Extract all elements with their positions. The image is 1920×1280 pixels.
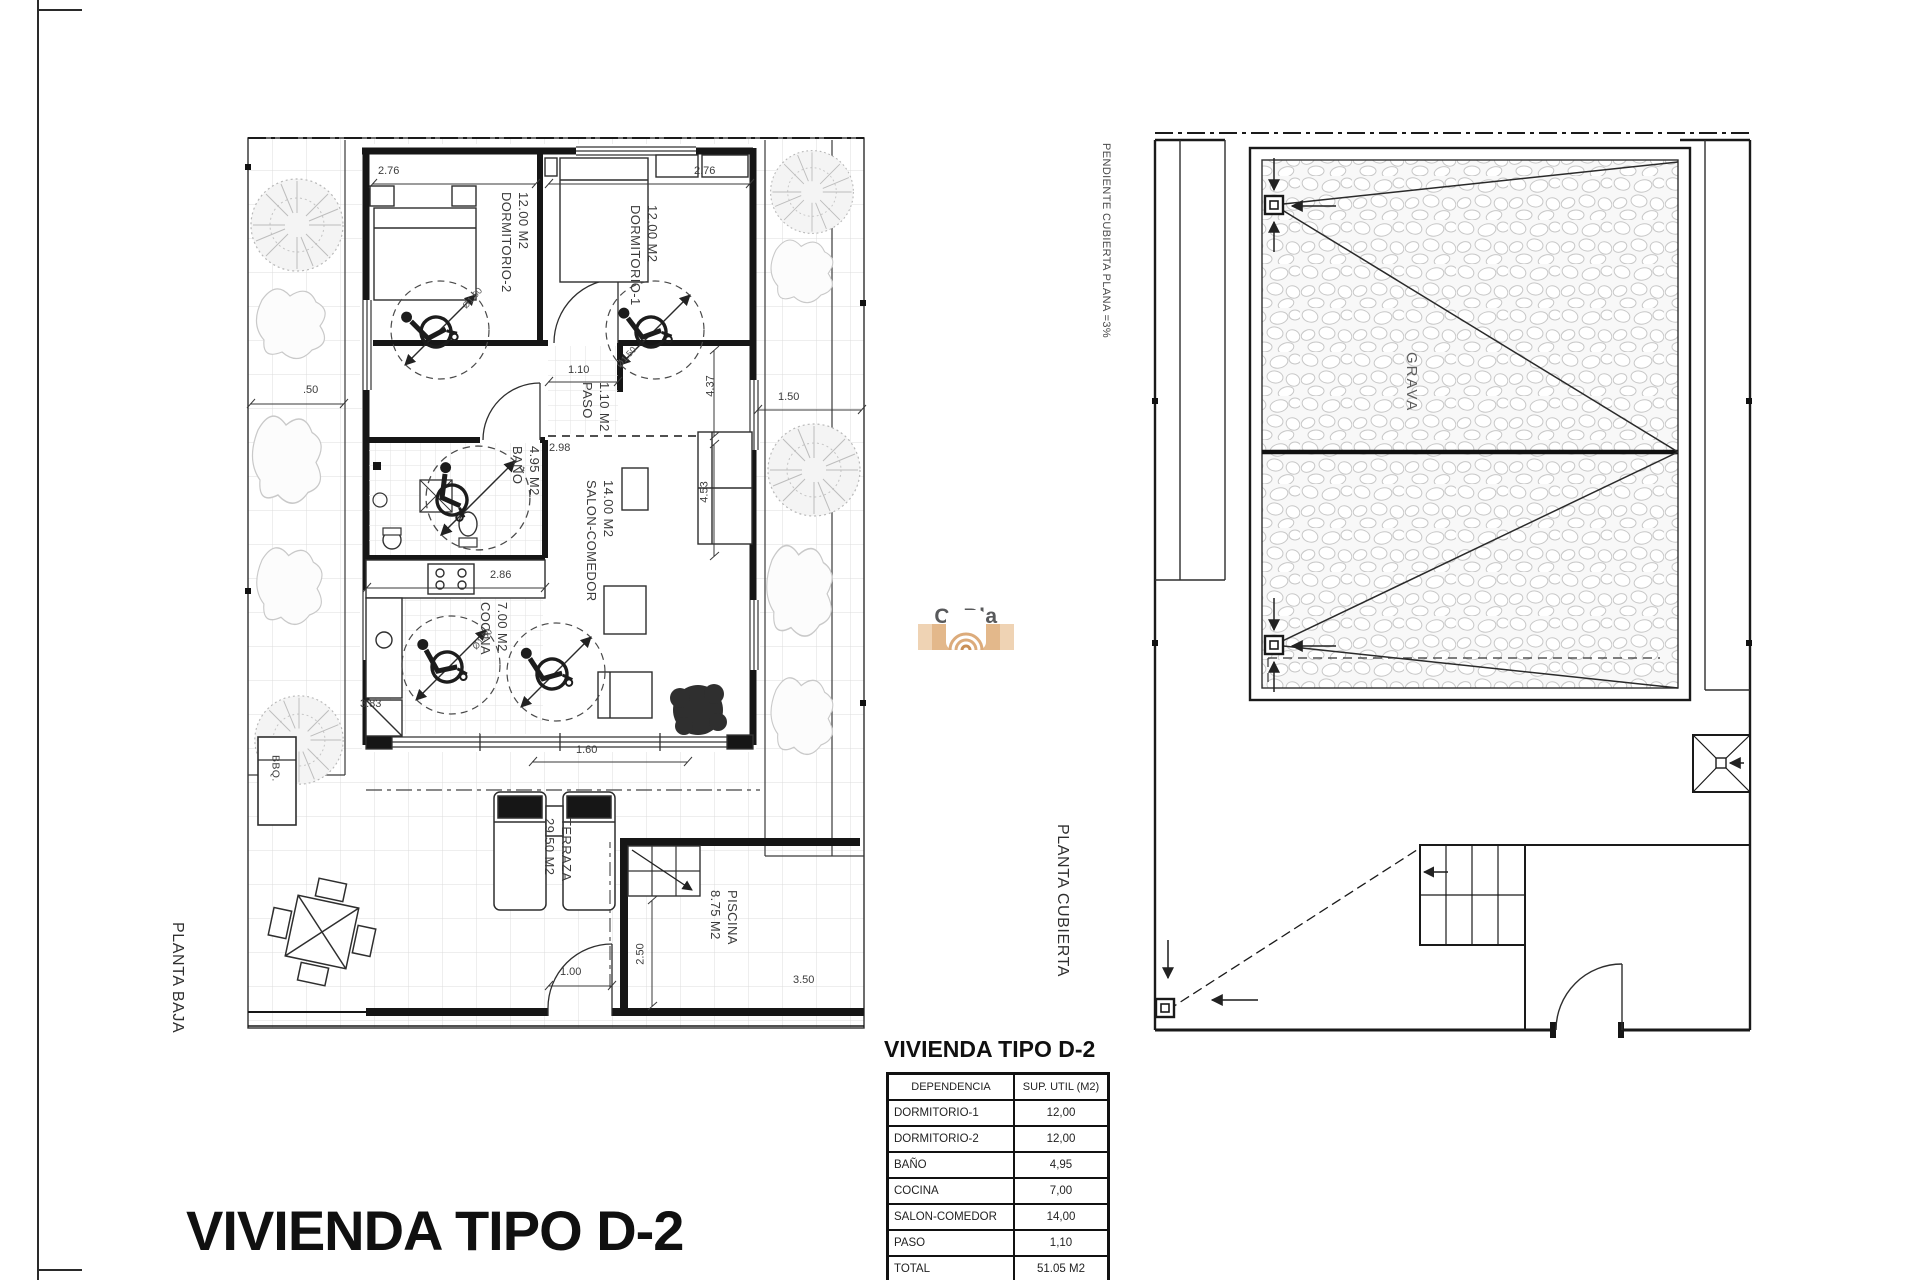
- roof-lower-area: [1168, 845, 1750, 1030]
- dim-cocina-corner: 3.83: [360, 698, 381, 710]
- room-label-paso: PASO1.10 M2: [578, 382, 612, 432]
- roof-door: [1550, 964, 1624, 1038]
- table-row: SALON-COMEDOR 14,00: [889, 1205, 1107, 1231]
- room-label-salon: SALON-COMEDOR14.00 M2: [582, 480, 616, 602]
- dim-paso-width: 1.10: [568, 364, 589, 376]
- summary-table: DEPENDENCIA SUP. UTIL (M2) DORMITORIO-1 …: [886, 1072, 1110, 1280]
- dim-dorm2-width: 2.76: [378, 165, 399, 177]
- dim-bano-width: 2.98: [549, 442, 570, 454]
- dim-salon-depth-b: 4.53: [699, 481, 711, 502]
- table-row: TOTAL 51.05 M2: [889, 1257, 1107, 1280]
- table-row: COCINA 7,00: [889, 1179, 1107, 1205]
- dim-pool-width: 3.50: [793, 974, 814, 986]
- cobla-logo-mark: [916, 606, 1016, 654]
- summary-table-title: VIVIENDA TIPO D-2: [884, 1036, 1095, 1063]
- tree: [251, 179, 343, 271]
- table-row: DORMITORIO-1 12,00: [889, 1101, 1107, 1127]
- room-label-bano: BAÑO4.95 M2: [508, 446, 542, 496]
- room-label-piscina: PISCINA8.75 M2: [706, 890, 740, 945]
- dim-dorm1-width: 2.76: [694, 165, 715, 177]
- plan-sheet: PLANTA BAJA PLANTA CUBIERTA PENDIENTE CU…: [0, 0, 1920, 1280]
- dim-left-strip: .50: [303, 384, 318, 396]
- ground-floor-plan-label: PLANTA BAJA: [168, 922, 186, 1033]
- cobla-logo: CoBla Vastgoed: [916, 606, 1016, 643]
- roof-plan-label: PLANTA CUBIERTA: [1053, 824, 1071, 977]
- kitchen-fixtures: [366, 560, 545, 736]
- table-row: PASO 1,10: [889, 1231, 1107, 1257]
- room-label-dormitorio2: DORMITORIO-212.00 M2: [497, 192, 531, 293]
- bbq-label: BBQ.: [268, 755, 282, 782]
- table-row: DORMITORIO-2 12,00: [889, 1127, 1107, 1153]
- table-row: BAÑO 4,95: [889, 1153, 1107, 1179]
- room-label-dormitorio1: DORMITORIO-112.00 M2: [626, 205, 660, 306]
- ground-floor-plan: [245, 138, 866, 1028]
- table-header-row: DEPENDENCIA SUP. UTIL (M2): [889, 1075, 1107, 1101]
- gravel-label: GRAVA: [1403, 352, 1420, 412]
- gravel-roof: [1250, 148, 1690, 700]
- plant: [670, 684, 727, 735]
- dim-glass-door: 1.60: [576, 744, 597, 756]
- dim-terrace-gate: 1.00: [560, 966, 581, 978]
- dim-right-strip: 1.50: [778, 391, 799, 403]
- dim-salon-depth-a: 4.37: [705, 375, 717, 396]
- room-label-terraza: TERRAZA29.50 M2: [540, 818, 574, 881]
- dim-pool-side: 2.50: [635, 943, 647, 964]
- roof-shower-box: [1693, 735, 1750, 792]
- roof-plan: [1152, 133, 1752, 1038]
- tree: [771, 151, 854, 234]
- sheet-border: [38, 0, 82, 1280]
- tree: [768, 424, 860, 516]
- roof-slope-note: PENDIENTE CUBIERTA PLANA =3%: [1100, 143, 1112, 338]
- dim-cocina-width: 2.86: [490, 569, 511, 581]
- sheet-main-title: VIVIENDA TIPO D-2: [186, 1198, 683, 1263]
